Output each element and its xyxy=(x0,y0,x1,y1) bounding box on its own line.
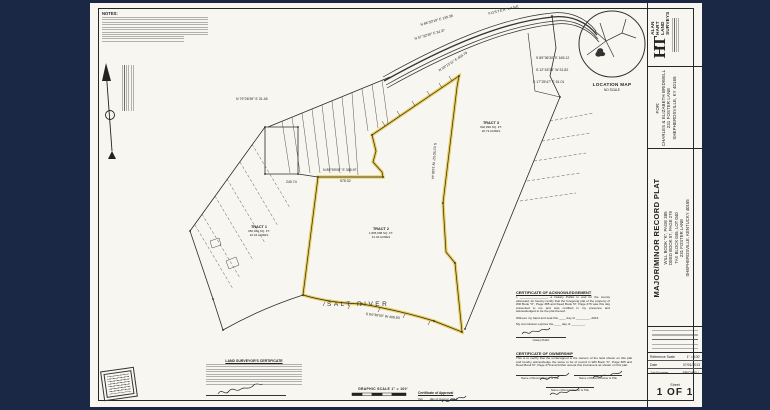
distance-label: 240.74 xyxy=(286,180,297,184)
subject-tract-highlight xyxy=(303,76,462,332)
location-map-subtitle: NO SCALE xyxy=(577,88,647,92)
plat-title-block: MAJOR/MINOR RECORD PLAT WILL BOOK "K", P… xyxy=(648,149,702,327)
sheet-number: 1 OF 1 xyxy=(657,387,694,398)
north-arrow-note xyxy=(122,65,134,111)
certificate-surveyor: LAND SURVEYOR'S CERTIFICATE xyxy=(206,359,302,396)
surveyor-stamp xyxy=(100,367,138,401)
certificate-surveyor-body xyxy=(206,364,302,386)
certificate-approval-heading: Certificate of Approval xyxy=(418,391,518,395)
surveyor-stamp-inner xyxy=(103,370,134,398)
screenshot-root: { "colors": { "background": "#1a2845", "… xyxy=(0,0,770,410)
bearing-label: S 17°25'47" E 51.01 xyxy=(533,80,564,84)
commission-line: My commission expires the ____ day of __… xyxy=(516,322,610,326)
tract-2-label: TRACT 2 1,805,998 SQ. FT. 41.46 ACRES xyxy=(358,227,404,239)
sheet-number-block: Sheet 1 OF 1 xyxy=(648,374,702,407)
firm-address-lines xyxy=(672,18,679,52)
notes-text-lines-2 xyxy=(102,36,184,43)
firm-name-line: SURVEYS xyxy=(665,11,670,34)
certificate-ownership-body: This is to certify that the undersigned … xyxy=(516,357,632,368)
info-row-date: Date 07/01/2013 xyxy=(648,361,702,369)
bearing-label: N 79°26'39" E 31.46 xyxy=(236,97,268,101)
witness-line: Witness my hand and seal this ____ day o… xyxy=(516,316,610,320)
survey-ticks xyxy=(323,76,452,325)
graphic-scale-bar xyxy=(352,393,406,396)
title-block: HT ALAN HART LAND SURVEYS FOR: CHARLES &… xyxy=(647,3,702,407)
certificate-acknowledgement: CERTIFICATE OF ACKNOWLEDGEMENT I, ______… xyxy=(516,290,610,342)
info-rows: Reference Scale 1" = 100' Date 07/01/201… xyxy=(648,353,702,374)
notes-text-lines xyxy=(102,17,208,35)
location-map-icon xyxy=(579,11,645,77)
plat-title: MAJOR/MINOR RECORD PLAT xyxy=(652,151,661,325)
small-parcels xyxy=(210,238,239,269)
certificate-ownership: CERTIFICATE OF OWNERSHIP This is to cert… xyxy=(516,351,632,392)
certificate-approval: Certificate of Approval this ___ day of … xyxy=(418,391,518,401)
surveyor-signature-line xyxy=(206,395,286,396)
tract-1-label: TRACT 1 960,062 SQ. FT. 22.04 ACRES xyxy=(236,225,282,237)
firm-logo-block: HT ALAN HART LAND SURVEYS xyxy=(648,3,702,67)
owner-signature-line: Name of Record Owner & Title xyxy=(546,387,594,392)
bearing-label: S 12°43'33" W 31.82 xyxy=(536,68,568,72)
bearing-label: N 89°59'08" E 308.97 xyxy=(323,168,356,172)
bearing-label: S 89°36'30" E 165.12 xyxy=(536,56,569,60)
graphic-scale-label: GRAPHIC SCALE 1" = 100' xyxy=(348,387,418,391)
lot-strips-right xyxy=(520,113,594,201)
tract-3-label: TRACT 3 902,999 SQ. FT. 20.73 ACRES xyxy=(468,121,514,133)
plat-ref-city: SHEPHERDSVILLE, KENTUCKY 40165 xyxy=(685,151,690,325)
notary-signature-line: Notary Public xyxy=(516,337,566,342)
owner-signature-line: Name of Record Owner & Title xyxy=(516,375,564,380)
revision-rows xyxy=(648,327,702,353)
notes-block: NOTES: xyxy=(102,11,210,43)
firm-monogram: HT xyxy=(653,37,667,58)
surveyor-stamp-text xyxy=(107,374,131,395)
approval-date-line: this ___ day of August, 2013 xyxy=(418,397,518,401)
plat-linework xyxy=(90,3,702,407)
certificate-acknowledgement-body: I, ________________, a Notary Public in … xyxy=(516,296,610,314)
distance-label: 575.32 xyxy=(340,179,351,183)
north-arrow-icon xyxy=(102,63,116,159)
notes-heading: NOTES: xyxy=(102,11,210,16)
client-block: FOR: CHARLES & ELIZABETH BRIDWELL 231 FO… xyxy=(648,67,702,149)
road-lines xyxy=(383,13,599,88)
owner-signature-line: Name of Record Owner & Title xyxy=(574,375,622,380)
client-address2: SHEPHERDSVILLE, KY 40165 xyxy=(672,69,678,147)
graphic-scale: GRAPHIC SCALE 1" = 100' xyxy=(348,387,418,391)
owner-signature-row: Name of Record Owner & Title Name of Rec… xyxy=(516,368,632,380)
lot-strips-left xyxy=(195,144,290,289)
plat-sheet: NOTES: LOCATION MAP NO SCALE FOSTER LANE… xyxy=(90,3,702,407)
corner-pins xyxy=(189,15,561,333)
outer-boundary xyxy=(190,16,560,330)
revision-lines xyxy=(652,330,698,349)
info-row-scale: Reference Scale 1" = 100' xyxy=(648,353,702,361)
river-label: SALT RIVER xyxy=(327,301,389,308)
certificate-surveyor-heading: LAND SURVEYOR'S CERTIFICATE xyxy=(206,359,302,363)
location-map-title: LOCATION MAP xyxy=(577,82,647,87)
